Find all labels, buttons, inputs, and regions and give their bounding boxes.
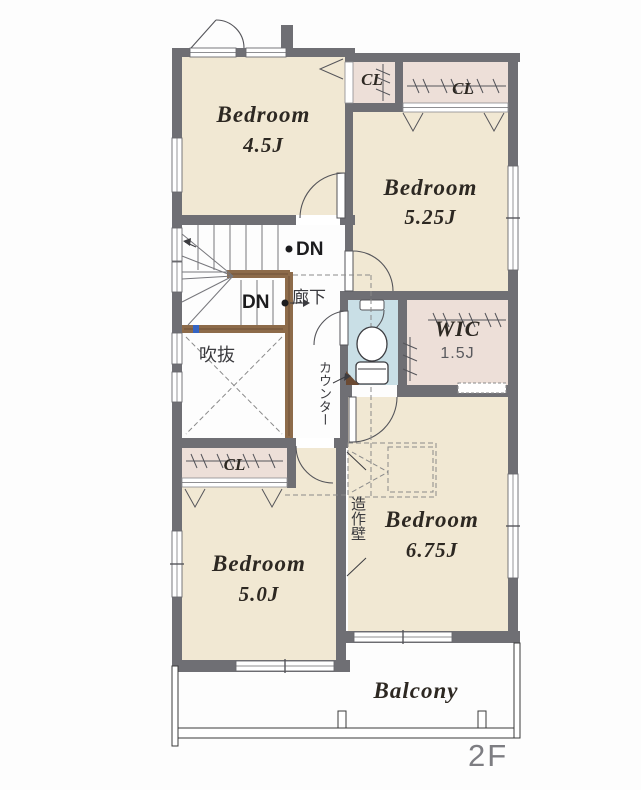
- rail-post: [478, 711, 486, 728]
- door-leaf-bedroom-4-5j: [337, 173, 345, 218]
- blue-mark: [193, 325, 199, 333]
- room-size-bedroom-5-0j: 5.0J: [182, 582, 336, 607]
- room-label-wic: WIC: [407, 316, 508, 342]
- room-label-bedroom-4-5j: Bedroom: [182, 102, 345, 128]
- counter-label: カウンター: [315, 361, 334, 435]
- stairs-dn-top-label: DN: [296, 239, 323, 261]
- room-size-bedroom-6-75j: 6.75J: [352, 538, 512, 563]
- feature-wall-label: 造作壁: [347, 496, 368, 558]
- dn-dot-mid: [282, 300, 289, 307]
- wic-opening: [458, 383, 506, 393]
- void-label: 吹抜: [199, 341, 267, 367]
- door-leaf-bedroom-6-75j: [349, 397, 356, 442]
- floor-label: 2F: [468, 738, 508, 774]
- closet-label-top-wide: CL: [423, 79, 503, 99]
- room-label-bedroom-5-25j: Bedroom: [353, 175, 508, 201]
- room-size-bedroom-4-5j: 4.5J: [182, 133, 345, 158]
- stairs-dn-mid-label: DN: [242, 292, 269, 314]
- toilet-bowl: [357, 327, 387, 361]
- room-label-balcony: Balcony: [336, 678, 496, 704]
- door-leaf-toilet-inner: [360, 300, 384, 310]
- rail-post: [338, 711, 346, 728]
- room-label-bedroom-5-0j: Bedroom: [182, 551, 336, 577]
- room-size-bedroom-5-25j: 5.25J: [353, 205, 508, 230]
- floor-plan-2f: Bedroom 4.5J Bedroom 5.25J Bedroom 6.75J…: [0, 0, 641, 790]
- closet-label-top-small: CL: [349, 70, 395, 90]
- door-leaf-bedroom-5-25j: [345, 251, 353, 291]
- floor-wic: [407, 300, 508, 385]
- exterior-door: [191, 20, 244, 48]
- stair-direction-arrow: [183, 238, 191, 246]
- closet-label-bottom: CL: [197, 455, 272, 475]
- door-leaf-toilet: [340, 311, 348, 345]
- room-size-wic: 1.5J: [407, 345, 508, 363]
- hallway-label: 廊下: [292, 283, 346, 308]
- toilet-tank: [356, 362, 388, 384]
- room-label-bedroom-6-75j: Bedroom: [352, 507, 512, 533]
- dn-dot-top: [286, 246, 293, 253]
